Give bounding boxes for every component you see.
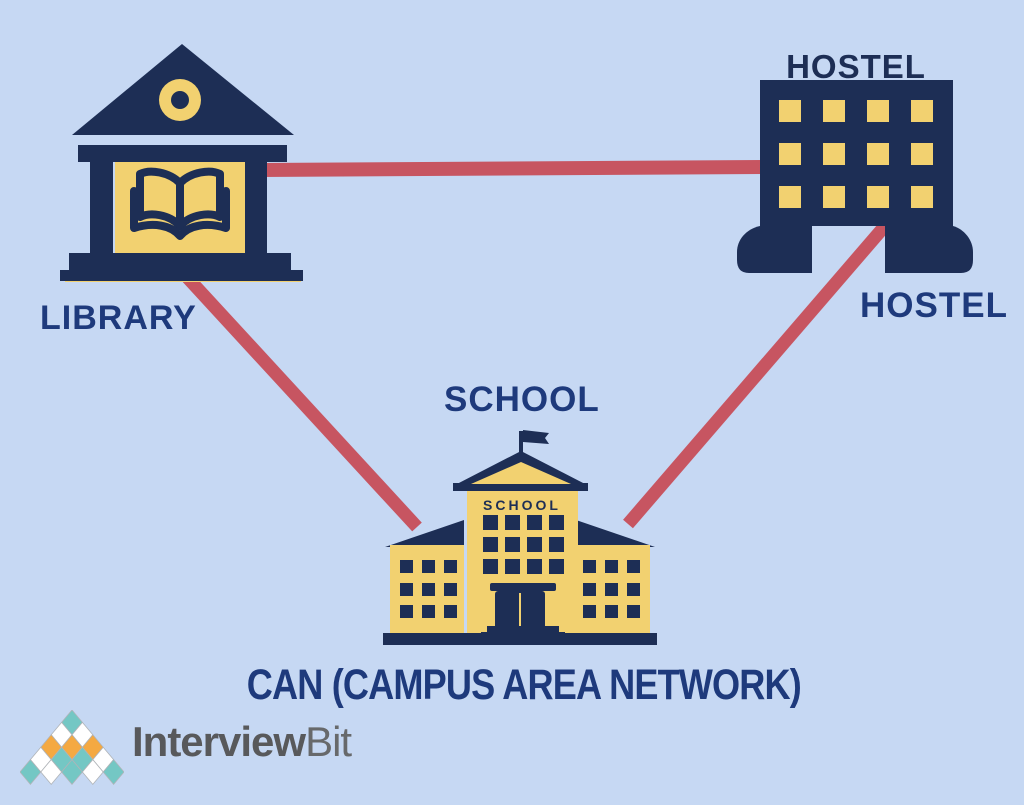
diagram-canvas: HOSTEL SCHOOL [0,0,1024,805]
school-base [383,633,657,645]
library-column-right [245,162,267,254]
interviewbit-logo: InterviewBit [20,710,351,786]
logo-text-light: Bit [305,718,351,765]
hostel-building-icon: HOSTEL [735,48,975,275]
diagram-caption: CAN (CAMPUS AREA NETWORK) [24,661,1024,710]
library-entablature [78,145,287,162]
school-step1 [487,626,559,632]
hostel-label: HOSTEL [860,286,1008,326]
library-building-icon [57,40,307,285]
school-building-icon: SCHOOL [383,423,657,645]
library-base-step1 [69,253,291,271]
logo-wordmark: InterviewBit [132,718,351,766]
hostel-foot-left [737,226,812,273]
school-building-sign: SCHOOL [483,497,561,513]
hostel-building-sign: HOSTEL [786,48,926,85]
library-label: LIBRARY [40,299,197,338]
link-library-hostel [260,167,766,170]
hostel-foot-right [885,226,973,273]
logo-pyramid-icon [20,710,124,786]
school-flag-icon [523,430,549,444]
school-wing-roof-left [385,520,464,547]
library-column-left [90,162,113,254]
school-wing-roof-right [576,520,655,547]
library-base-step2 [60,270,303,281]
school-label: SCHOOL [444,380,600,420]
open-book-icon [134,172,226,236]
logo-text-bold: Interview [132,718,305,765]
school-door-lintel [490,583,556,591]
